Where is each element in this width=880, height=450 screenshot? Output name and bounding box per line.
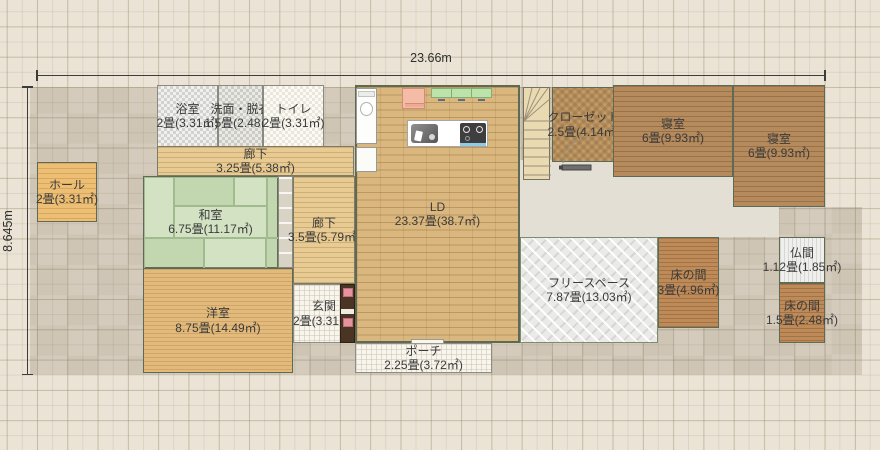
dimension-tick	[22, 374, 33, 376]
room-bedroom2-size: 6畳(9.93㎡)	[748, 146, 810, 160]
washbasin[interactable]	[356, 88, 377, 144]
room-hall-label: ホール	[49, 178, 85, 192]
room-bedroom2-label: 寝室	[767, 132, 791, 146]
site-footprint-right	[825, 207, 862, 375]
tatami-mat	[204, 238, 266, 269]
flower-pot-icon	[343, 318, 353, 327]
room-closet-label: クローゼット	[548, 110, 620, 124]
dimension-height-line	[27, 87, 28, 375]
dimension-height-label: 8.645m	[1, 87, 19, 375]
room-butsuma-size: 1.12畳(1.85㎡)	[763, 260, 842, 274]
kitchen-wall-cabinet[interactable]	[431, 88, 492, 98]
room-tokonoma-2[interactable]: 床の間 1.5畳(2.48㎡)	[779, 283, 825, 343]
room-tokonoma1-size: 3畳(4.96㎡)	[657, 283, 719, 297]
flower-pot-icon	[343, 288, 353, 297]
tatami-mat	[144, 238, 204, 269]
cabinet-gap	[341, 309, 354, 314]
dimension-width-line	[37, 75, 825, 76]
stove-front-strip	[460, 143, 486, 146]
room-tokonoma-1[interactable]: 床の間 3畳(4.96㎡)	[658, 237, 719, 328]
room-porch[interactable]: ポーチ 2.25畳(3.72㎡)	[355, 343, 492, 373]
room-hall[interactable]: ホール 2畳(3.31㎡)	[37, 162, 97, 222]
room-freespace[interactable]: フリースペース 7.87畳(13.03㎡)	[520, 237, 658, 343]
basin-bowl-icon	[360, 102, 373, 116]
cabinet-handle-icon	[478, 99, 485, 101]
kitchen-counter[interactable]	[407, 120, 488, 147]
room-washroom[interactable]: 洗面・脱衣 1.5畳(2.48㎡)	[218, 85, 263, 147]
washitsu-shelf-strip[interactable]	[278, 176, 293, 268]
cabinet-divider	[471, 89, 472, 97]
room-tokonoma2-label: 床の間	[784, 299, 820, 313]
cabinet-handle-icon	[458, 99, 465, 101]
room-corridor2-size: 3.5畳(5.79㎡)	[288, 230, 360, 244]
kitchen-sink-icon	[411, 124, 438, 143]
room-toilet-size: 2畳(3.31㎡)	[262, 116, 324, 130]
cabinet-divider	[451, 89, 452, 97]
room-butsuma-label: 仏間	[790, 246, 814, 260]
room-bedroom-2[interactable]: 寝室 6畳(9.93㎡)	[733, 85, 825, 207]
stairs[interactable]	[523, 87, 550, 180]
room-hall-size: 2畳(3.31㎡)	[36, 192, 98, 206]
room-corridor-2[interactable]: 廊下 3.5畳(5.79㎡)	[293, 176, 355, 284]
room-washitsu-label: 和室	[198, 208, 222, 222]
tatami-mat	[174, 177, 234, 206]
room-youshitsu-size: 8.75畳(14.49㎡)	[175, 321, 260, 335]
room-ld-size: 23.37畳(38.7㎡)	[395, 214, 480, 228]
cabinet-handle-icon	[438, 99, 445, 101]
basin-counter-icon	[358, 91, 375, 97]
room-corridor2-label: 廊下	[312, 216, 336, 230]
room-ld-label: LD	[430, 200, 445, 214]
closet-door-swing-icon[interactable]	[552, 130, 615, 175]
room-toilet[interactable]: トイレ 2畳(3.31㎡)	[263, 85, 324, 147]
room-bedroom-1[interactable]: 寝室 6畳(9.93㎡)	[613, 85, 733, 177]
room-bedroom1-label: 寝室	[661, 117, 685, 131]
room-bath-label: 浴室	[175, 102, 199, 116]
room-porch-size: 2.25畳(3.72㎡)	[384, 358, 463, 372]
room-toilet-label: トイレ	[275, 102, 311, 116]
room-youshitsu[interactable]: 洋室 8.75畳(14.49㎡)	[143, 268, 293, 373]
room-freespace-label: フリースペース	[548, 276, 630, 290]
room-washitsu[interactable]: 和室 6.75畳(11.17㎡)	[143, 176, 278, 268]
dimension-width-label: 23.66m	[37, 51, 825, 65]
room-butsuma[interactable]: 仏間 1.12畳(1.85㎡)	[779, 237, 825, 283]
room-corridor-1[interactable]: 廊下 3.25畳(5.38㎡)	[157, 146, 354, 176]
dimension-tick	[824, 70, 826, 81]
room-tokonoma2-size: 1.5畳(2.48㎡)	[766, 313, 838, 327]
room-bedroom1-size: 6畳(9.93㎡)	[642, 131, 704, 145]
fridge-handle-icon	[405, 103, 424, 107]
stove-icon	[460, 123, 486, 144]
refrigerator[interactable]	[402, 88, 425, 109]
room-corridor1-label: 廊下	[243, 147, 267, 161]
tatami-mat	[234, 177, 267, 206]
dimension-tick	[22, 86, 33, 88]
room-genkan-label: 玄関	[312, 299, 336, 313]
dimension-tick	[36, 70, 38, 81]
shoe-cabinet[interactable]	[340, 284, 355, 343]
floor-plan-canvas: 浴室 2畳(3.31㎡) 洗面・脱衣 1.5畳(2.48㎡) トイレ 2畳(3.…	[0, 0, 880, 450]
room-youshitsu-label: 洋室	[206, 306, 230, 320]
room-washroom-label: 洗面・脱衣	[211, 102, 271, 116]
room-washitsu-size: 6.75畳(11.17㎡)	[168, 222, 253, 236]
entrance-step	[411, 339, 444, 344]
room-freespace-size: 7.87畳(13.03㎡)	[546, 290, 631, 304]
cabinet-under-stairs[interactable]	[356, 147, 377, 172]
room-porch-label: ポーチ	[405, 344, 441, 358]
room-corridor1-size: 3.25畳(5.38㎡)	[216, 161, 295, 175]
room-tokonoma1-label: 床の間	[670, 268, 706, 282]
